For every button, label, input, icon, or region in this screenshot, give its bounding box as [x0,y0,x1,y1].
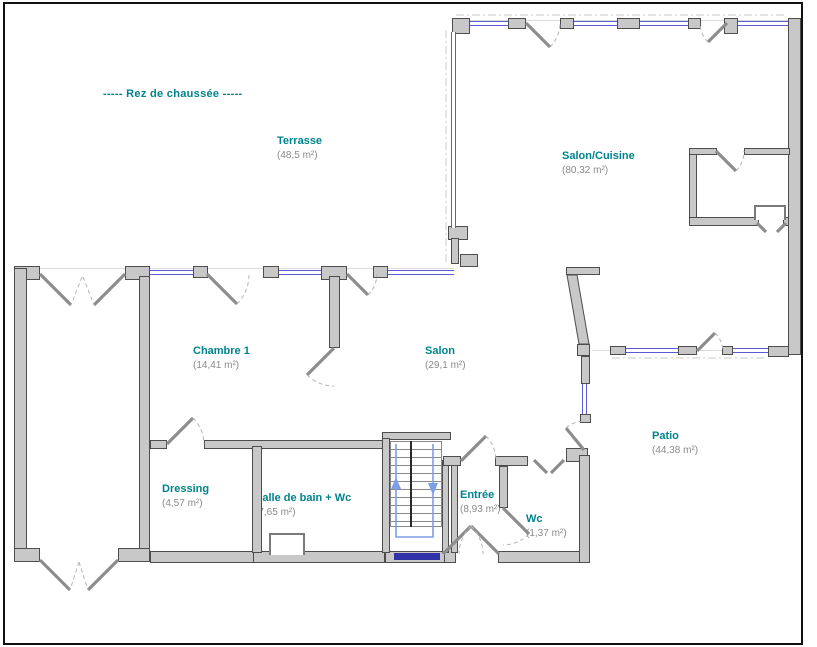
window [150,270,193,275]
room-label-patio: Patio (44,38 m²) [652,429,698,458]
room-name: Salon [425,344,466,358]
wall-segment [193,266,208,278]
wall-niche [269,533,305,555]
wall-segment [150,551,255,563]
stairs-divider [410,441,412,527]
wall-segment [689,148,697,225]
wall-segment [508,18,526,29]
wall-segment [689,217,759,226]
wall-niche [754,205,786,220]
wall-segment [451,460,458,553]
wall-segment [498,551,590,563]
wall-face-line [30,268,454,269]
room-name: Patio [652,429,698,443]
wall-segment [382,438,390,553]
room-area: (8,93 m²) [460,503,501,517]
wall-segment [139,276,150,562]
room-name: Wc [526,512,567,526]
wall-segment [373,266,388,278]
window [470,21,508,26]
wall-segment [724,18,738,34]
wall-segment [722,346,733,355]
window [574,21,617,26]
wall-segment [688,18,701,29]
room-label-dressing: Dressing (4,57 m²) [162,482,209,511]
window-entry [394,553,440,560]
wall-segment [204,440,385,449]
wall-segment [768,346,789,357]
window [451,32,456,228]
room-area: (29,1 m²) [425,359,466,373]
room-label-salon-cuisine: Salon/Cuisine (80,32 m²) [562,149,635,178]
room-name: Salle de bain + Wc [255,491,351,505]
wall-segment [118,548,150,562]
wall-segment [744,148,790,155]
room-area: (4,57 m²) [162,497,209,511]
wall-segment [577,344,590,356]
room-label-entree: Entrée (8,93 m²) [460,488,501,517]
window [733,348,768,353]
wall-segment [329,276,340,348]
wall-segment [499,466,508,508]
wall-segment [617,18,640,29]
wall-segment [580,414,591,423]
wall-segment [581,356,590,384]
wall-segment [443,456,461,466]
room-area: (1,37 m²) [526,527,567,541]
wall-segment [14,268,27,562]
floor-plan: ----- Rez de chaussée ----- Terrasse (48… [0,0,817,647]
wall-segment [689,148,717,155]
stairs-treads [390,441,442,527]
room-name: Terrasse [277,134,322,148]
window [640,21,688,26]
room-label-salle-de-bain: Salle de bain + Wc (7,65 m²) [255,491,351,520]
room-name: Entrée [460,488,501,502]
room-area: (48,5 m²) [277,149,322,163]
wall-segment [610,346,626,355]
wall-segment [560,18,574,29]
wall-segment [150,440,167,449]
room-label-chambre-1: Chambre 1 (14,41 m²) [193,344,250,373]
room-label-salon: Salon (29,1 m²) [425,344,466,373]
wall-segment [263,266,279,278]
room-area: (7,65 m²) [255,506,351,520]
wall-segment [788,18,801,355]
wall-segment [451,238,459,264]
room-name: Dressing [162,482,209,496]
window [279,270,321,275]
wall-segment [14,548,40,562]
wall-segment [566,267,600,275]
room-area: (44,38 m²) [652,444,698,458]
room-name: Salon/Cuisine [562,149,635,163]
wall-segment [460,254,478,267]
room-label-wc: Wc (1,37 m²) [526,512,567,541]
wall-segment [495,456,528,466]
wall-segment [579,455,590,563]
floor-title: ----- Rez de chaussée ----- [103,88,243,100]
room-label-terrasse: Terrasse (48,5 m²) [277,134,322,163]
wall-segment [382,432,451,440]
wall-segment [442,460,449,553]
room-name: Chambre 1 [193,344,250,358]
wall-segment [252,446,262,553]
room-area: (80,32 m²) [562,164,635,178]
window [388,270,454,275]
window [626,348,678,353]
room-area: (14,41 m²) [193,359,250,373]
wall-segment [678,346,697,355]
window [582,384,587,414]
window [738,21,788,26]
